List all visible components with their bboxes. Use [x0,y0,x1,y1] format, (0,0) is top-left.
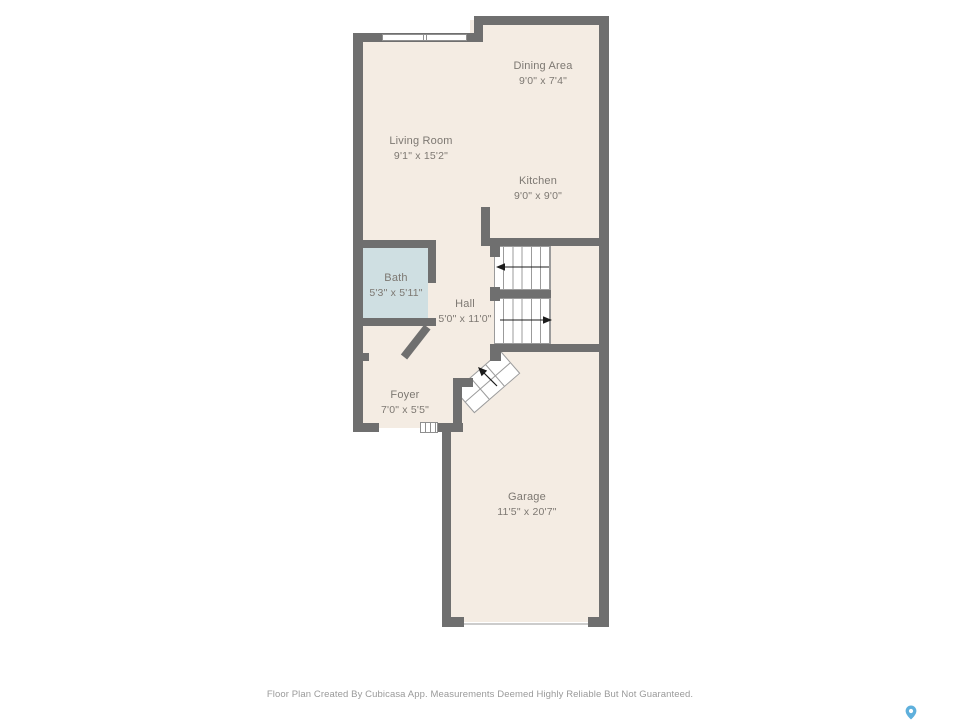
wall-bath-top [353,240,436,248]
wall-dining-top [474,16,609,25]
room-name: Garage [497,490,556,505]
wall-kitchen-bottom [481,238,609,246]
window-mullion [423,35,427,40]
room-dimensions: 5'3" x 5'11" [369,286,422,301]
room-dimensions: 9'1" x 15'2" [389,149,452,164]
wall-stair-top-stub [490,246,500,257]
room-name: Foyer [381,388,429,403]
wall-bath-right [428,240,436,283]
room-name: Kitchen [514,174,562,189]
floor-dining-kitchen [470,20,604,246]
wall-garage-left [442,423,451,627]
map-pin-icon [906,706,917,720]
window-symbol [382,34,467,41]
entry-door-symbol [420,422,438,433]
room-label-foyer: Foyer 7'0" x 5'5" [381,388,429,418]
room-dimensions: 9'0" x 9'0" [514,189,562,204]
wall-hall-bottom-cap [490,344,501,361]
room-label-garage: Garage 11'5" x 20'7" [497,490,556,520]
room-name: Hall [438,297,491,312]
garage-door-opening [464,623,588,625]
room-label-hall: Hall 5'0" x 11'0" [438,297,491,327]
room-label-kitchen: Kitchen 9'0" x 9'0" [514,174,562,204]
room-dimensions: 5'0" x 11'0" [438,312,491,327]
wall-hall-foyer-stub [353,353,369,361]
staircase-lower-run [494,298,551,344]
wall-right [599,16,609,627]
footer-disclaimer: Floor Plan Created By Cubicasa App. Meas… [0,689,960,701]
room-name: Living Room [389,134,452,149]
staircase-upper-run [494,246,551,290]
wall-foyer-right-cap [453,378,473,387]
wall-foyer-bottom-left [353,423,379,432]
room-dimensions: 9'0" x 7'4" [513,74,572,89]
room-label-living: Living Room 9'1" x 15'2" [389,134,452,164]
wall-hall-bottom [490,344,609,352]
wall-kitchen-living-stub [481,207,490,246]
floor-plan-page: Dining Area 9'0" x 7'4" Living Room 9'1"… [0,0,960,720]
wall-garage-bottom-left-cap [442,617,464,627]
room-name: Dining Area [513,59,572,74]
room-label-dining: Dining Area 9'0" x 7'4" [513,59,572,89]
wall-stair-divider [492,290,551,298]
room-label-bath: Bath 5'3" x 5'11" [369,271,422,301]
wall-left [353,33,363,432]
wall-garage-bottom-right-cap [588,617,609,627]
room-dimensions: 7'0" x 5'5" [381,403,429,418]
room-name: Bath [369,271,422,286]
room-dimensions: 11'5" x 20'7" [497,505,556,520]
